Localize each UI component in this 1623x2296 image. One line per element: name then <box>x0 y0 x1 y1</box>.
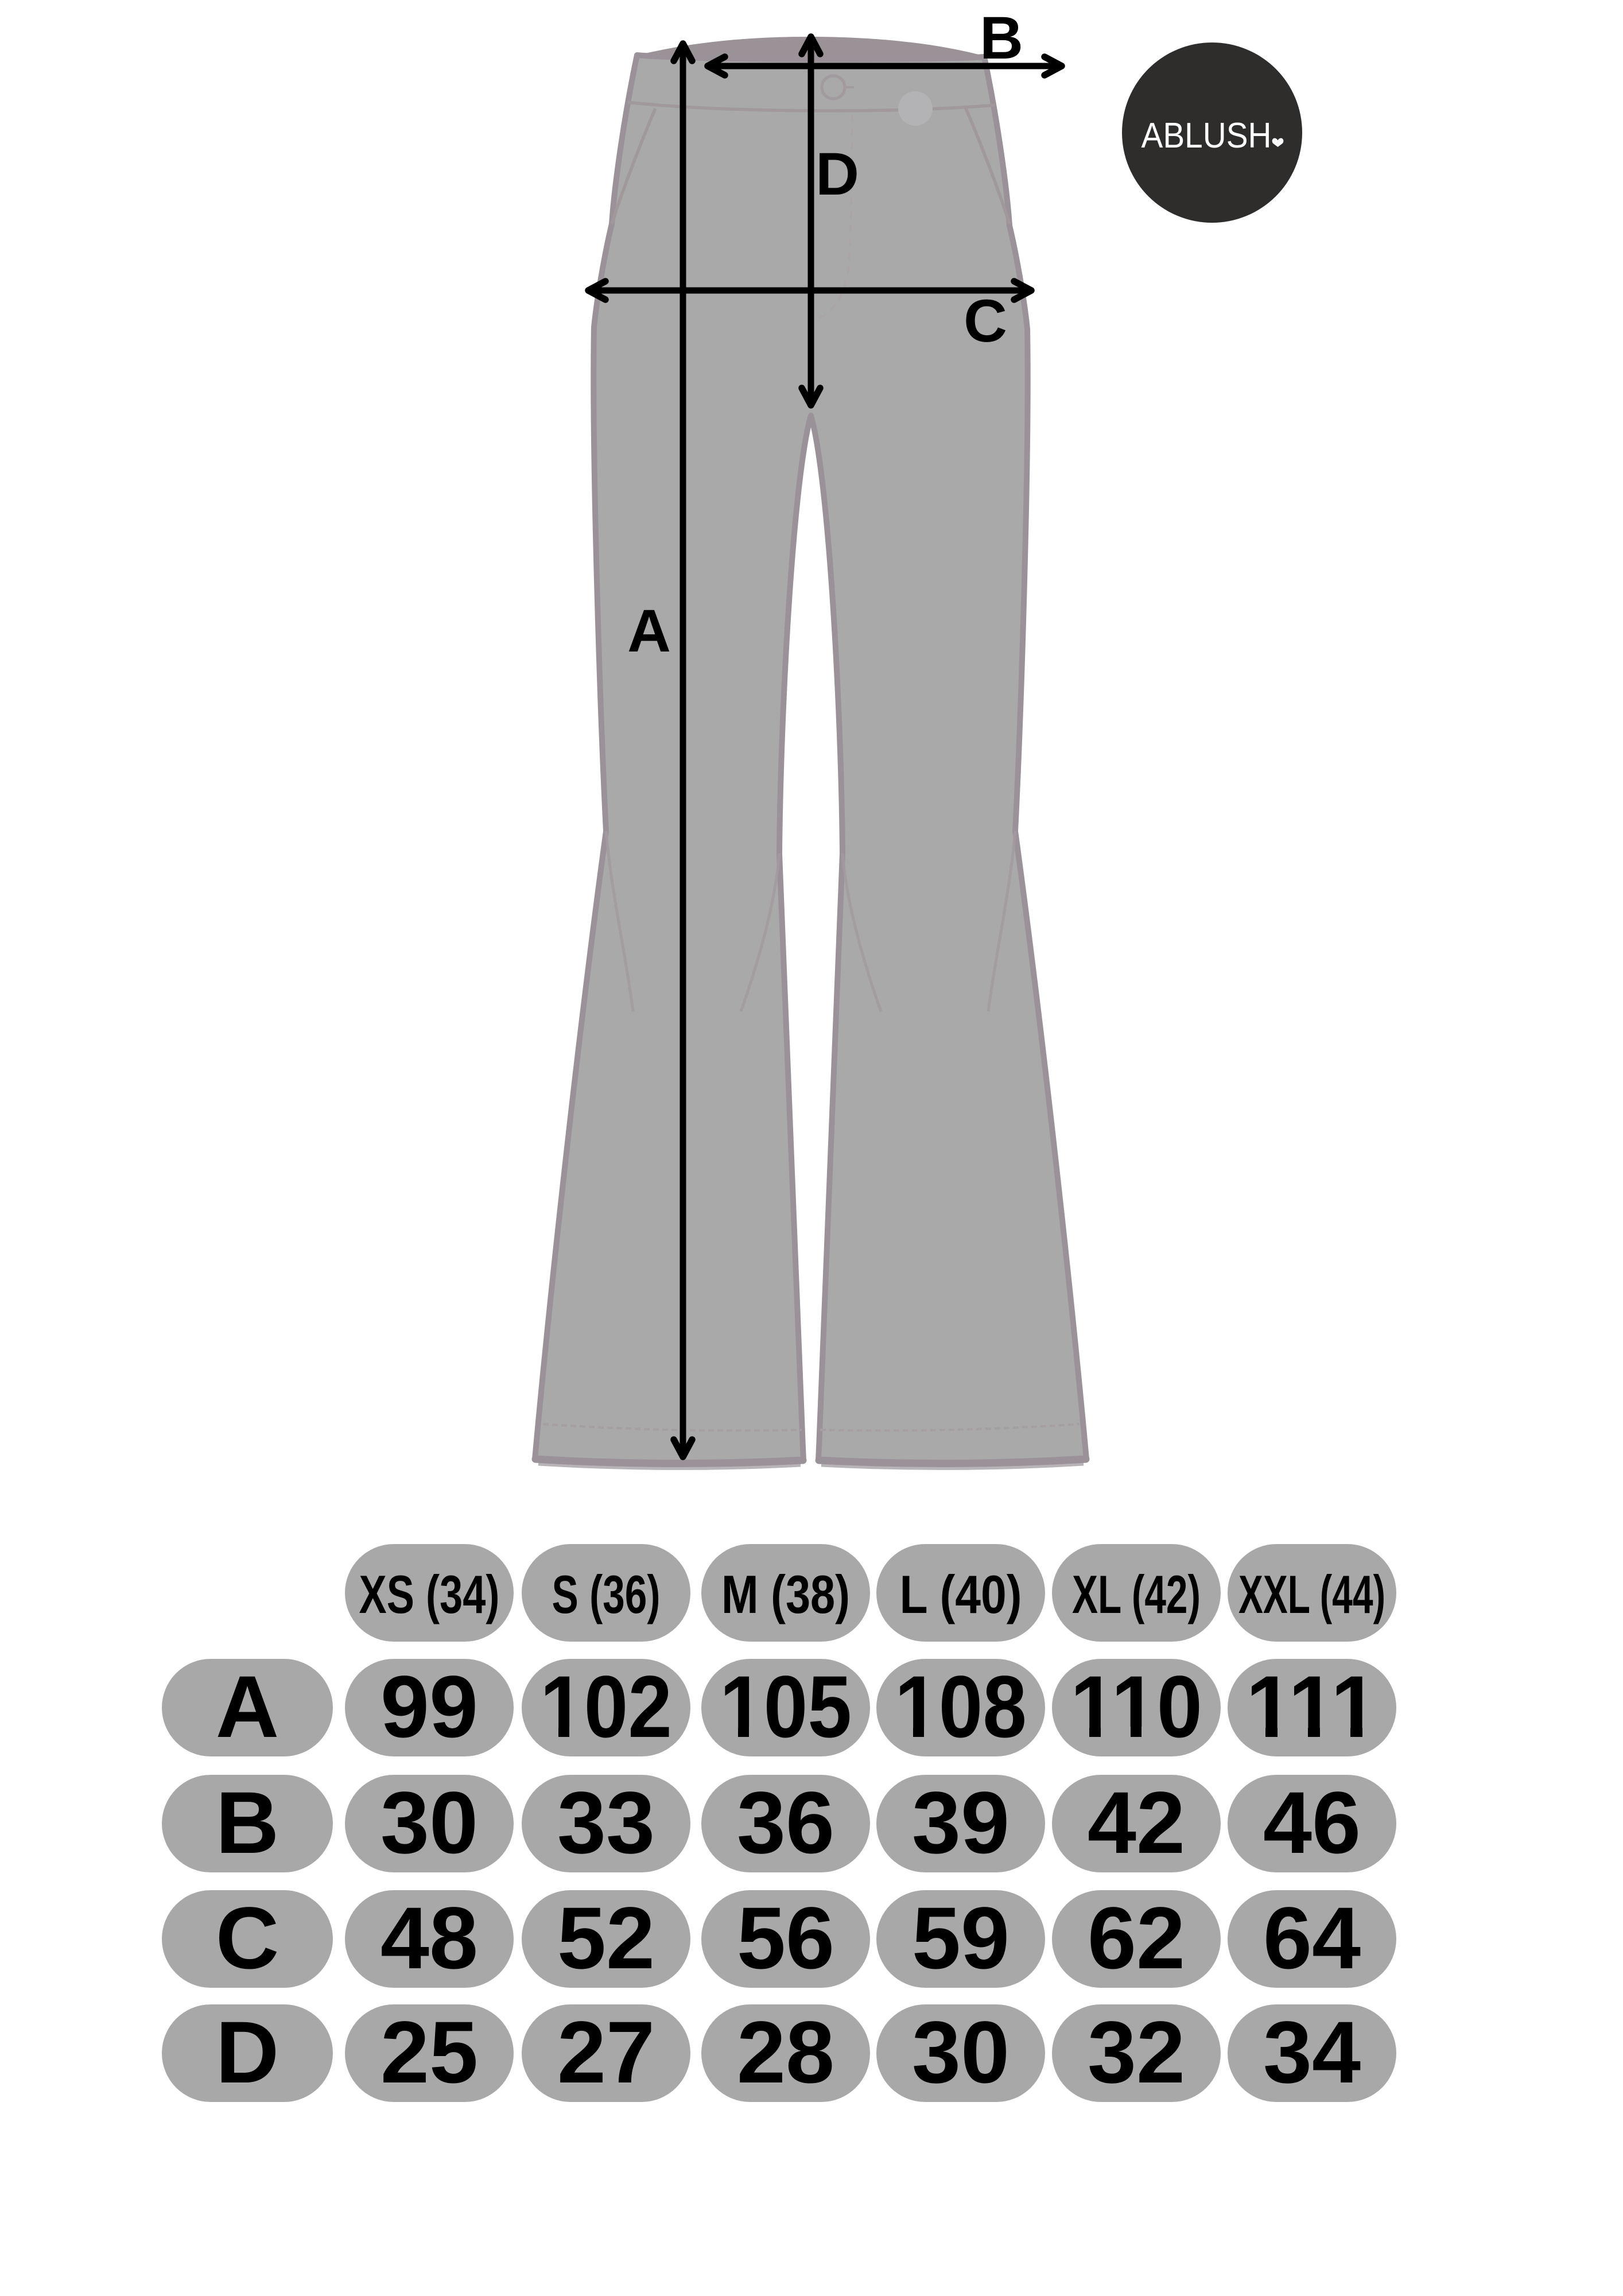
svg-text:A: A <box>627 598 671 665</box>
svg-text:B: B <box>980 5 1023 72</box>
svg-text:27: 27 <box>557 2003 655 2101</box>
svg-text:64: 64 <box>1263 1889 1361 1987</box>
svg-text:59: 59 <box>912 1889 1009 1987</box>
svg-text:C: C <box>964 288 1007 355</box>
svg-text:52: 52 <box>557 1889 655 1987</box>
svg-text:46: 46 <box>1263 1774 1361 1872</box>
svg-text:62: 62 <box>1088 1889 1185 1987</box>
svg-text:25: 25 <box>380 2003 478 2101</box>
svg-text:39: 39 <box>912 1774 1009 1872</box>
svg-text:108: 108 <box>895 1658 1027 1756</box>
svg-text:D: D <box>216 2003 279 2101</box>
svg-text:B: B <box>216 1774 279 1872</box>
svg-text:D: D <box>816 141 859 208</box>
svg-text:C: C <box>216 1889 279 1987</box>
svg-text:30: 30 <box>912 2003 1009 2101</box>
svg-text:34: 34 <box>1263 2003 1361 2101</box>
svg-text:48: 48 <box>380 1889 478 1987</box>
svg-text:110: 110 <box>1070 1658 1202 1756</box>
svg-text:XS (34): XS (34) <box>359 1564 500 1624</box>
svg-text:28: 28 <box>737 2003 834 2101</box>
svg-text:ABLUSH: ABLUSH <box>1141 116 1272 156</box>
svg-text:33: 33 <box>557 1774 655 1872</box>
svg-text:99: 99 <box>380 1658 478 1756</box>
svg-text:L (40): L (40) <box>900 1564 1022 1624</box>
svg-text:XL (42): XL (42) <box>1072 1564 1201 1624</box>
svg-text:32: 32 <box>1088 2003 1185 2101</box>
svg-text:102: 102 <box>540 1658 672 1756</box>
svg-text:111: 111 <box>1246 1658 1378 1756</box>
svg-text:A: A <box>216 1658 279 1756</box>
svg-text:56: 56 <box>737 1889 834 1987</box>
svg-text:S (36): S (36) <box>552 1564 661 1624</box>
svg-text:42: 42 <box>1088 1774 1185 1872</box>
svg-text:105: 105 <box>720 1658 852 1756</box>
svg-text:30: 30 <box>380 1774 478 1872</box>
svg-text:36: 36 <box>737 1774 834 1872</box>
svg-text:M (38): M (38) <box>721 1564 850 1624</box>
svg-text:XXL (44): XXL (44) <box>1238 1564 1385 1624</box>
